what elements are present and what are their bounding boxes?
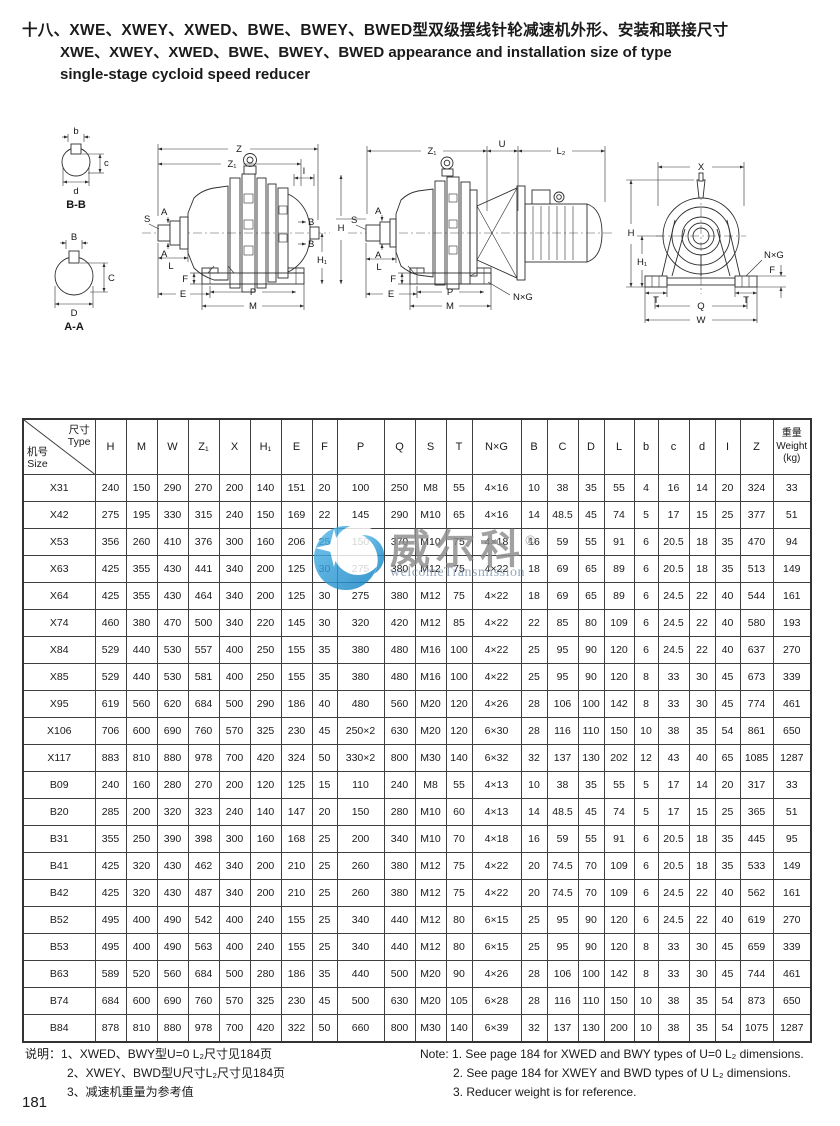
table-cell: 145 [281, 610, 312, 637]
table-cell: 38 [547, 475, 578, 502]
table-cell: 25 [312, 934, 337, 961]
table-cell: 500 [188, 610, 219, 637]
table-cell: 240 [95, 475, 126, 502]
table-cell: 15 [312, 772, 337, 799]
table-cell: 630 [384, 718, 415, 745]
table-cell: 340 [219, 853, 250, 880]
dim-label-Mm: M [446, 301, 454, 312]
table-cell: 35 [715, 556, 740, 583]
table-cell: 4×18 [472, 529, 521, 556]
table-cell: 30 [689, 664, 715, 691]
table-cell: 150 [250, 502, 281, 529]
table-cell: 230 [281, 988, 312, 1015]
table-cell: 400 [126, 907, 157, 934]
table-cell: 80 [578, 610, 604, 637]
row-model-label: B63 [23, 961, 95, 988]
table-cell: 45 [715, 961, 740, 988]
dim-label-P: P [250, 287, 256, 298]
table-cell: 1085 [740, 745, 773, 772]
table-cell: 480 [337, 691, 384, 718]
table-cell: 40 [715, 583, 740, 610]
table-row: B0924016028027020012012515110240M8554×13… [23, 772, 811, 799]
table-cell: 120 [446, 718, 472, 745]
table-cell: 25 [715, 799, 740, 826]
table-cell: 659 [740, 934, 773, 961]
row-model-label: X85 [23, 664, 95, 691]
table-cell: 8 [634, 664, 658, 691]
table-cell: 125 [281, 556, 312, 583]
table-row: B7468460069076057032523045500630M201056×… [23, 988, 811, 1015]
table-cell: 168 [281, 826, 312, 853]
dim-label-M: M [249, 301, 257, 312]
table-cell: 33 [658, 664, 689, 691]
table-cell: 570 [219, 718, 250, 745]
table-cell: 380 [384, 853, 415, 880]
table-cell: 6 [634, 637, 658, 664]
table-cell: 75 [446, 529, 472, 556]
table-cell: 35 [312, 961, 337, 988]
table-cell: 32 [521, 1015, 547, 1043]
table-cell: 10 [634, 1015, 658, 1043]
table-cell: 120 [446, 691, 472, 718]
table-cell: 330 [157, 502, 188, 529]
table-row: X4227519533031524015016922145290M10654×1… [23, 502, 811, 529]
table-cell: 380 [337, 637, 384, 664]
table-cell: M8 [415, 475, 446, 502]
table-cell: 202 [604, 745, 634, 772]
table-cell: 760 [188, 718, 219, 745]
table-cell: 461 [773, 691, 811, 718]
table-cell: 6 [634, 826, 658, 853]
table-cell: 440 [126, 664, 157, 691]
table-cell: 4 [634, 475, 658, 502]
table-cell: 16 [658, 475, 689, 502]
table-cell: 250 [250, 664, 281, 691]
table-cell: 150 [604, 718, 634, 745]
table-cell: 120 [604, 934, 634, 961]
table-cell: 100 [446, 637, 472, 664]
row-model-label: X63 [23, 556, 95, 583]
table-row: X10670660069076057032523045250×2630M2012… [23, 718, 811, 745]
table-cell: 6 [634, 880, 658, 907]
table-cell: 94 [773, 529, 811, 556]
table-cell: 495 [95, 907, 126, 934]
table-cell: 35 [715, 529, 740, 556]
row-model-label: X53 [23, 529, 95, 556]
table-cell: 25 [521, 934, 547, 961]
table-cell: 160 [126, 772, 157, 799]
dim-label-A1: A [161, 207, 168, 218]
table-cell: 30 [312, 583, 337, 610]
table-cell: 873 [740, 988, 773, 1015]
table-cell: 978 [188, 745, 219, 772]
table-cell: M20 [415, 718, 446, 745]
table-cell: 340 [219, 610, 250, 637]
table-cell: 106 [547, 691, 578, 718]
table-cell: 440 [126, 637, 157, 664]
table-cell: 125 [281, 583, 312, 610]
table-cell: 275 [95, 502, 126, 529]
table-cell: 340 [219, 880, 250, 907]
table-cell: 55 [604, 772, 634, 799]
dim-label-Z: Z [236, 144, 242, 155]
row-model-label: B31 [23, 826, 95, 853]
row-model-label: B52 [23, 907, 95, 934]
table-cell: M12 [415, 880, 446, 907]
column-header: Z₁ [188, 419, 219, 475]
table-cell: 4×22 [472, 610, 521, 637]
table-cell: 464 [188, 583, 219, 610]
table-cell: 54 [715, 718, 740, 745]
table-cell: 45 [312, 988, 337, 1015]
table-cell: 6×32 [472, 745, 521, 772]
column-header: H [95, 419, 126, 475]
table-cell: 620 [157, 691, 188, 718]
table-cell: 430 [157, 583, 188, 610]
table-cell: 325 [250, 718, 281, 745]
row-model-label: B74 [23, 988, 95, 1015]
table-cell: 4×22 [472, 880, 521, 907]
title-chinese: 十八、XWE、XWEY、XWED、BWE、BWEY、BWED型双级摆线针轮减速机… [22, 20, 822, 42]
dim-label-F: F [182, 274, 188, 285]
section-aa-title: A-A [64, 321, 84, 333]
table-cell: 30 [689, 691, 715, 718]
table-cell: 22 [689, 583, 715, 610]
table-cell: 193 [773, 610, 811, 637]
table-cell: 800 [384, 1015, 415, 1043]
column-header: d [689, 419, 715, 475]
table-cell: 20 [715, 475, 740, 502]
table-cell: 90 [578, 934, 604, 961]
table-cell: 20 [521, 880, 547, 907]
figure-front-view: X H [626, 162, 786, 326]
table-cell: 380 [384, 556, 415, 583]
table-cell: 290 [384, 502, 415, 529]
column-header: Z [740, 419, 773, 475]
table-cell: M10 [415, 826, 446, 853]
table-cell: 105 [446, 988, 472, 1015]
table-cell: 480 [384, 664, 415, 691]
table-cell: 440 [384, 907, 415, 934]
table-cell: 315 [188, 502, 219, 529]
table-cell: 400 [219, 637, 250, 664]
dim-label-E: E [180, 289, 186, 300]
table-cell: 25 [312, 826, 337, 853]
column-header: N×G [472, 419, 521, 475]
table-cell: 490 [157, 907, 188, 934]
table-cell: 5 [634, 772, 658, 799]
table-cell: 4×26 [472, 691, 521, 718]
table-cell: 280 [157, 772, 188, 799]
table-cell: 425 [95, 880, 126, 907]
table-cell: 619 [95, 691, 126, 718]
table-cell: M30 [415, 745, 446, 772]
table-cell: 880 [157, 745, 188, 772]
table-row: B4242532043048734020021025260380M12754×2… [23, 880, 811, 907]
table-cell: 425 [95, 556, 126, 583]
table-cell: 4×22 [472, 664, 521, 691]
table-cell: 330×2 [337, 745, 384, 772]
technical-drawings: b c d B-B B C D [18, 116, 822, 354]
table-cell: 109 [604, 853, 634, 880]
table-row: X8452944053055740025015535380480M161004×… [23, 637, 811, 664]
table-cell: 270 [188, 475, 219, 502]
table-cell: 8 [634, 961, 658, 988]
table-cell: 285 [95, 799, 126, 826]
table-row: X6442535543046434020012530275380M12754×2… [23, 583, 811, 610]
table-cell: 40 [715, 637, 740, 664]
dim-label-Z1m: Z₁ [427, 146, 436, 157]
table-cell: M16 [415, 637, 446, 664]
table-cell: 324 [281, 745, 312, 772]
dim-label-Hf: H [628, 228, 635, 239]
catalog-page: 十八、XWE、XWEY、XWED、BWE、BWEY、BWED型双级摆线针轮减速机… [0, 0, 840, 1126]
table-cell: 186 [281, 961, 312, 988]
row-model-label: X31 [23, 475, 95, 502]
table-cell: 430 [157, 880, 188, 907]
table-cell: 45 [715, 934, 740, 961]
table-cell: 160 [250, 529, 281, 556]
table-cell: 810 [126, 745, 157, 772]
dim-label-Ff: F [769, 265, 775, 276]
table-cell: 40 [715, 610, 740, 637]
table-cell: M12 [415, 583, 446, 610]
table-cell: 65 [715, 745, 740, 772]
table-cell: 30 [312, 610, 337, 637]
table-cell: 15 [689, 799, 715, 826]
table-cell: 4×16 [472, 475, 521, 502]
table-cell: 40 [312, 691, 337, 718]
table-cell: 18 [521, 583, 547, 610]
table-cell: 978 [188, 1015, 219, 1043]
table-cell: M20 [415, 988, 446, 1015]
table-cell: 35 [312, 637, 337, 664]
table-cell: 151 [281, 475, 312, 502]
table-row: X5335626041037630016020625150370M10754×1… [23, 529, 811, 556]
table-cell: 320 [337, 610, 384, 637]
table-cell: M12 [415, 853, 446, 880]
column-header: E [281, 419, 312, 475]
table-row: X8552944053058140025015535380480M161004×… [23, 664, 811, 691]
table-cell: M30 [415, 1015, 446, 1043]
table-cell: 142 [604, 961, 634, 988]
row-model-label: X95 [23, 691, 95, 718]
table-cell: 800 [384, 745, 415, 772]
table-cell: 48.5 [547, 502, 578, 529]
dim-label-H1f: H₁ [637, 257, 647, 268]
column-header: D [578, 419, 604, 475]
dim-label-Em: E [388, 289, 394, 300]
table-cell: 5 [634, 502, 658, 529]
table-cell: 25 [312, 880, 337, 907]
table-cell: 544 [740, 583, 773, 610]
table-cell: 25 [312, 907, 337, 934]
table-cell: 75 [446, 556, 472, 583]
table-cell: 155 [281, 934, 312, 961]
table-cell: 570 [219, 988, 250, 1015]
table-cell: 275 [337, 583, 384, 610]
table-cell: 220 [250, 610, 281, 637]
table-cell: 4×22 [472, 583, 521, 610]
table-cell: 280 [384, 799, 415, 826]
table-cell: 85 [547, 610, 578, 637]
table-cell: 425 [95, 583, 126, 610]
table-cell: 90 [578, 907, 604, 934]
table-cell: 684 [95, 988, 126, 1015]
dim-label-H1: H₁ [317, 255, 327, 266]
table-row: X7446038047050034022014530320420M12854×2… [23, 610, 811, 637]
table-cell: 340 [219, 583, 250, 610]
table-cell: 365 [740, 799, 773, 826]
table-cell: 240 [250, 907, 281, 934]
dim-label-C: C [108, 273, 115, 284]
table-cell: 320 [126, 853, 157, 880]
table-cell: 16 [521, 529, 547, 556]
table-cell: 200 [219, 772, 250, 799]
table-cell: 25 [312, 529, 337, 556]
table-row: B6358952056068450028018635440500M20904×2… [23, 961, 811, 988]
table-cell: 400 [219, 934, 250, 961]
table-cell: 75 [446, 853, 472, 880]
table-cell: 200 [250, 853, 281, 880]
table-cell: 490 [157, 934, 188, 961]
table-cell: 744 [740, 961, 773, 988]
figure-side-view: Z Z₁ I [142, 144, 330, 312]
table-cell: 55 [604, 475, 634, 502]
table-cell: 25 [521, 907, 547, 934]
table-cell: 70 [446, 826, 472, 853]
note-en-item1: 1. See page 184 for XWED and BWY types o… [452, 1047, 804, 1061]
table-cell: 65 [578, 583, 604, 610]
table-cell: 560 [157, 961, 188, 988]
table-cell: 370 [384, 529, 415, 556]
table-cell: 89 [604, 583, 634, 610]
notes-chinese: 说明：1、XWED、BWY型U=0 L₂尺寸见184页 2、XWEY、BWD型U… [25, 1045, 395, 1102]
dim-label-D: D [71, 308, 78, 319]
table-cell: 38 [658, 718, 689, 745]
table-cell: 24.5 [658, 637, 689, 664]
figure-section-aa: B C D A-A [55, 232, 115, 333]
table-cell: 425 [95, 853, 126, 880]
table-cell: 55 [578, 826, 604, 853]
table-cell: 20 [312, 799, 337, 826]
table-cell: 250 [384, 475, 415, 502]
table-cell: 324 [740, 475, 773, 502]
table-cell: 25 [521, 664, 547, 691]
table-cell: M10 [415, 529, 446, 556]
table-cell: 110 [578, 988, 604, 1015]
table-cell: 420 [250, 745, 281, 772]
dim-label-W: W [697, 315, 706, 326]
table-cell: 130 [578, 745, 604, 772]
table-cell: 160 [250, 826, 281, 853]
table-cell: 95 [547, 907, 578, 934]
table-cell: 420 [250, 1015, 281, 1043]
table-cell: 14 [521, 799, 547, 826]
table-cell: 210 [281, 853, 312, 880]
column-header: Q [384, 419, 415, 475]
table-cell: 140 [446, 1015, 472, 1043]
dim-label-B2: B [308, 239, 314, 250]
table-cell: 1075 [740, 1015, 773, 1043]
note-en-item3: 3. Reducer weight is for reference. [420, 1083, 825, 1102]
table-cell: 137 [547, 1015, 578, 1043]
table-cell: 200 [250, 880, 281, 907]
table-cell: 22 [689, 610, 715, 637]
table-cell: 155 [281, 664, 312, 691]
table-cell: 74 [604, 502, 634, 529]
table-cell: 6 [634, 583, 658, 610]
table-cell: 20.5 [658, 556, 689, 583]
table-cell: M10 [415, 502, 446, 529]
table-cell: 38 [658, 1015, 689, 1043]
table-cell: 340 [219, 556, 250, 583]
table-cell: 270 [188, 772, 219, 799]
table-cell: 25 [715, 502, 740, 529]
row-model-label: B09 [23, 772, 95, 799]
table-cell: 1287 [773, 745, 811, 772]
table-cell: 22 [521, 610, 547, 637]
table-cell: 4×26 [472, 961, 521, 988]
table-cell: 487 [188, 880, 219, 907]
dim-label-A2: A [161, 249, 168, 260]
column-header: b [634, 419, 658, 475]
table-cell: 35 [689, 718, 715, 745]
dim-label-Fm: F [390, 274, 396, 285]
dim-label-Sm: S [351, 215, 357, 226]
table-cell: 650 [773, 718, 811, 745]
table-cell: 150 [337, 799, 384, 826]
table-cell: 69 [547, 556, 578, 583]
table-cell: M16 [415, 664, 446, 691]
table-cell: 325 [250, 988, 281, 1015]
table-cell: 100 [337, 475, 384, 502]
dim-label-L2: L₂ [557, 146, 566, 157]
table-cell: 17 [658, 502, 689, 529]
table-cell: 161 [773, 583, 811, 610]
row-model-label: B84 [23, 1015, 95, 1043]
column-header: W [157, 419, 188, 475]
table-cell: 45 [312, 718, 337, 745]
table-cell: 51 [773, 502, 811, 529]
table-cell: 340 [384, 826, 415, 853]
row-model-label: B42 [23, 880, 95, 907]
table-cell: 430 [157, 556, 188, 583]
table-cell: 33 [773, 475, 811, 502]
row-model-label: X117 [23, 745, 95, 772]
table-cell: 28 [521, 718, 547, 745]
table-cell: 55 [578, 529, 604, 556]
table-cell: 20.5 [658, 853, 689, 880]
table-cell: 542 [188, 907, 219, 934]
table-cell: 230 [281, 718, 312, 745]
table-cell: 120 [250, 772, 281, 799]
dim-label-A2m: A [375, 250, 382, 261]
table-cell: 240 [250, 934, 281, 961]
dim-label-I: I [303, 166, 306, 177]
table-cell: 28 [521, 691, 547, 718]
table-cell: 150 [604, 988, 634, 1015]
table-header-row: 尺寸Type机号SizeHMWZ₁XH₁EFPQSTN×GBCDLbcdIZ重量… [23, 419, 811, 475]
table-cell: 100 [578, 691, 604, 718]
note-zh-item2: 2、XWEY、BWD型U尺寸L₂尺寸见184页 [25, 1064, 395, 1083]
table-cell: 116 [547, 988, 578, 1015]
table-cell: 145 [337, 502, 384, 529]
weight-column-header: 重量Weight(kg) [773, 419, 811, 475]
table-cell: 91 [604, 529, 634, 556]
table-cell: 35 [715, 826, 740, 853]
table-cell: 275 [337, 556, 384, 583]
